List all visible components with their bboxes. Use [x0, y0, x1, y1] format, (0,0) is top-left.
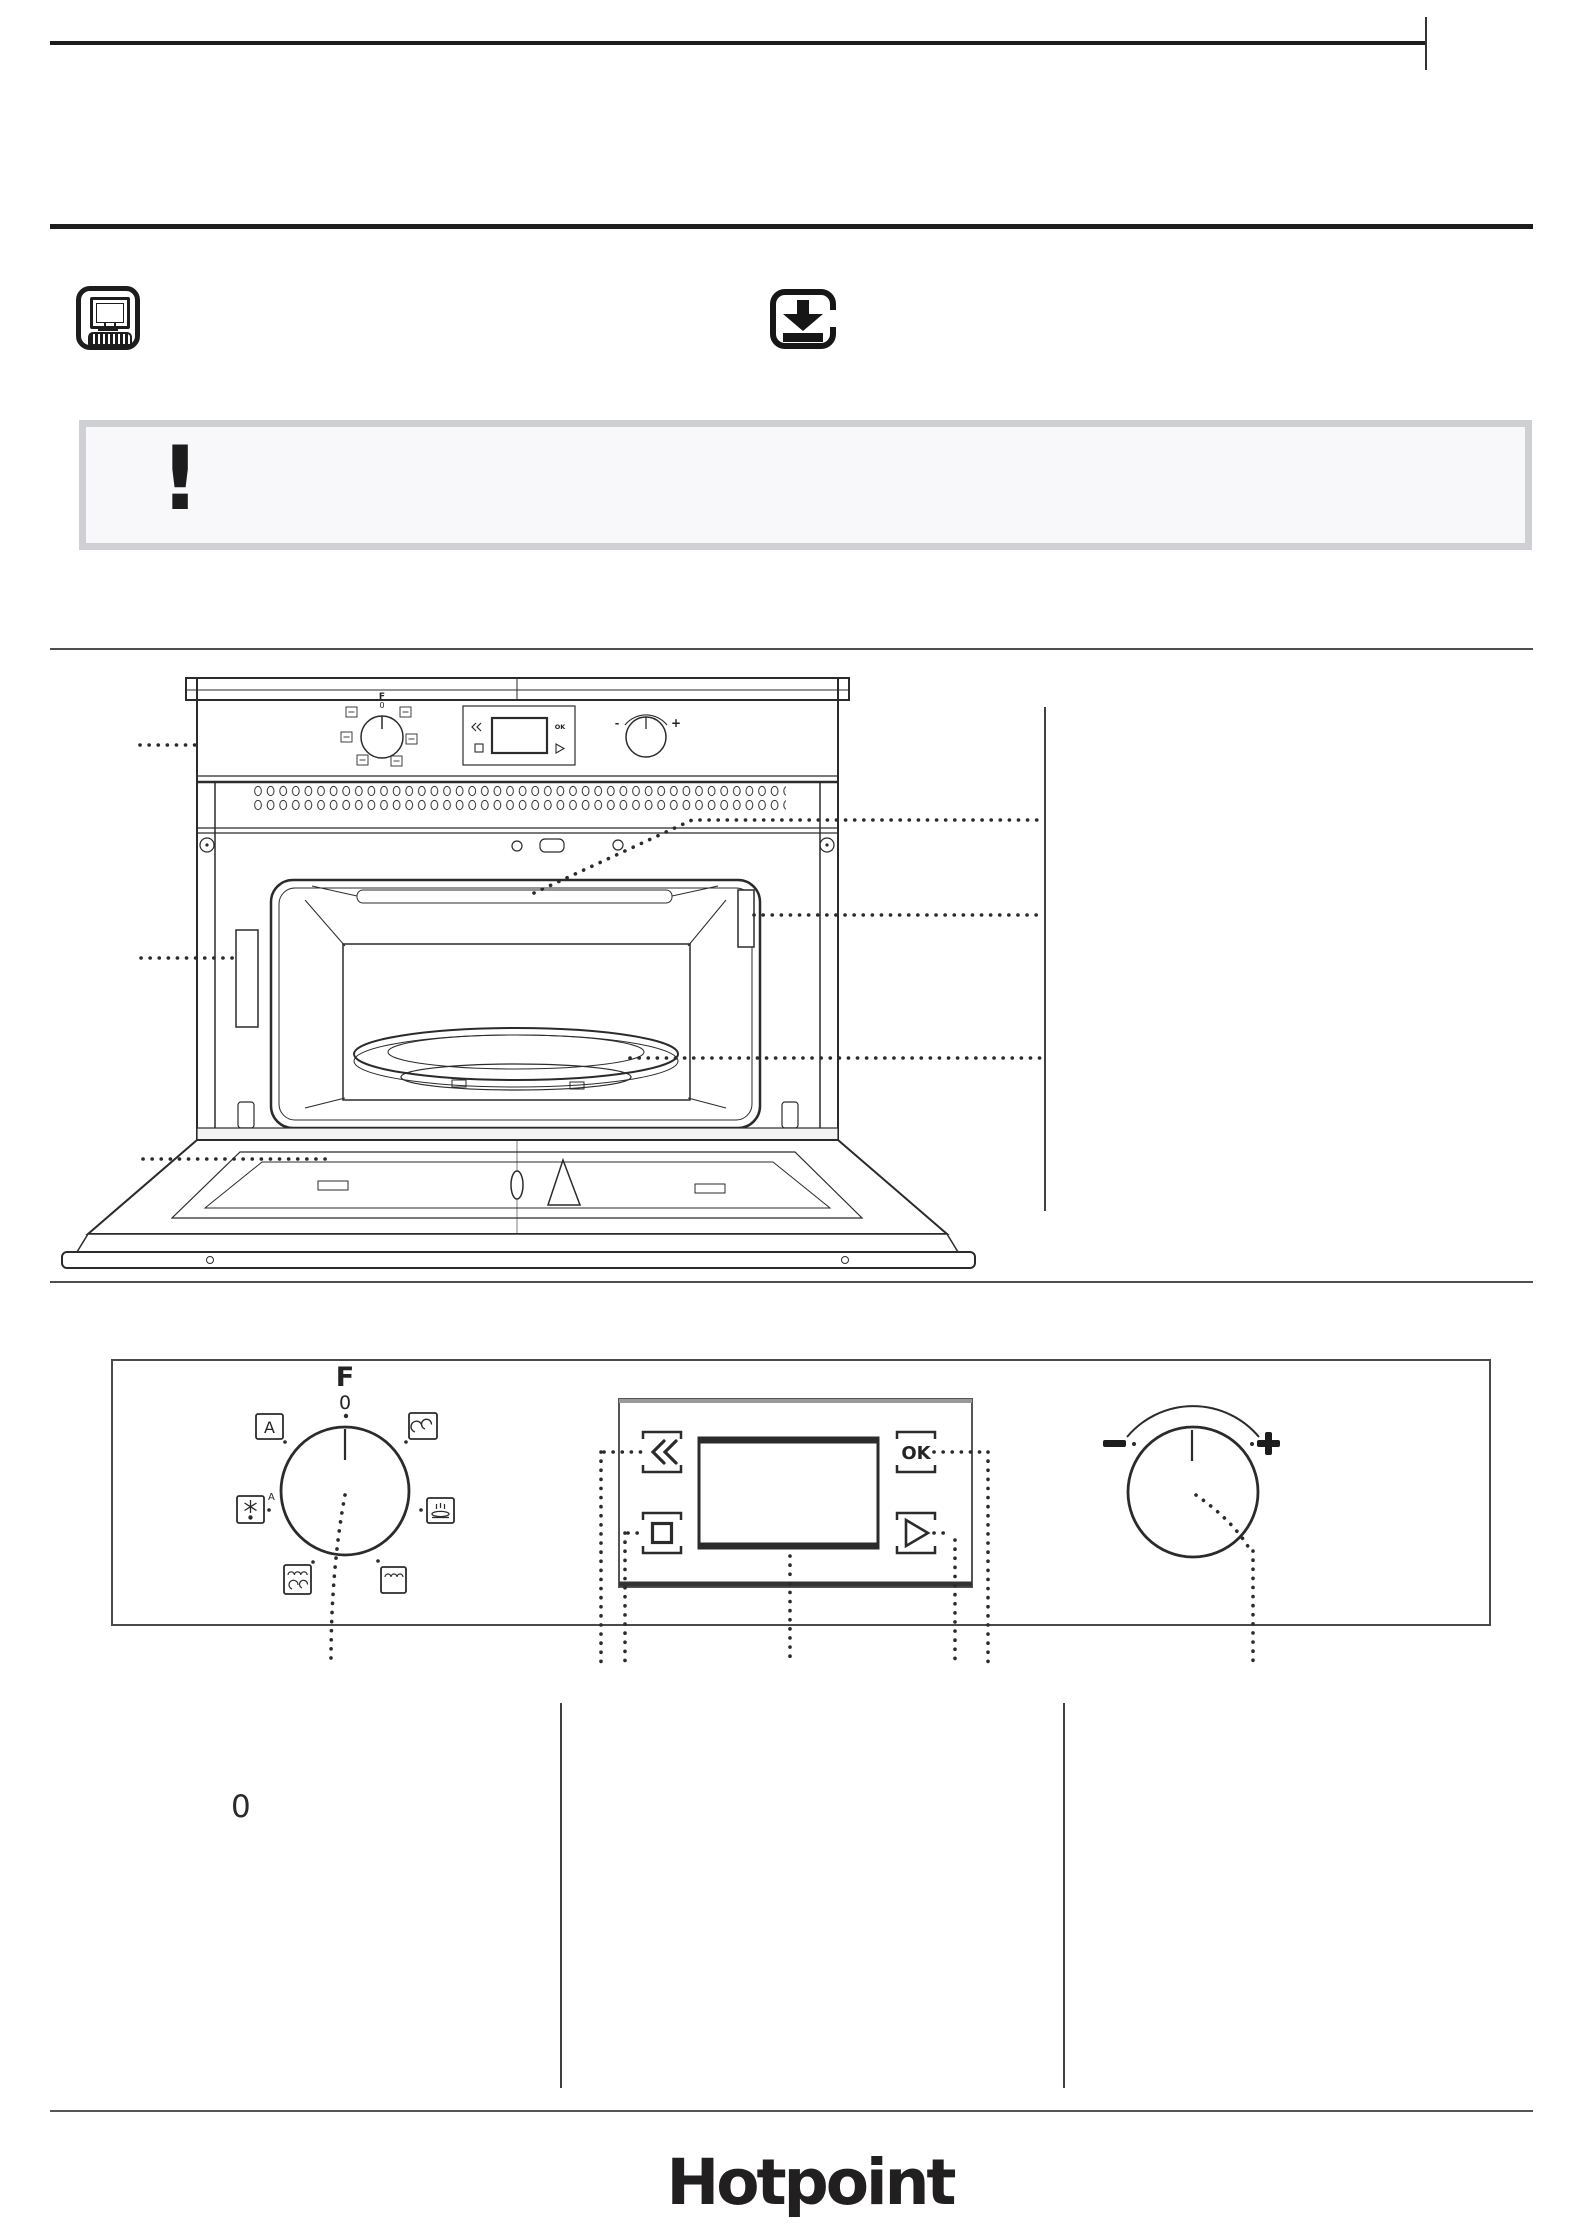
download-icon-gap	[830, 310, 836, 327]
mini-stop-icon	[475, 744, 483, 752]
divider-2	[50, 1281, 1533, 1283]
alert-box: !	[79, 420, 1532, 550]
monitor-stand-base	[98, 328, 118, 331]
latch-ports	[512, 839, 623, 852]
mini-zero-label: 0	[379, 701, 384, 710]
mini-back-icon	[472, 723, 481, 731]
minus-icon	[1103, 1440, 1126, 1447]
manual-page: ! F 0	[0, 0, 1576, 2233]
download-arrow-head	[783, 314, 823, 331]
section-rule	[50, 224, 1533, 229]
download-arrow-stem	[797, 300, 809, 314]
svg-text:A: A	[264, 1418, 275, 1437]
table-divider-right	[1063, 1703, 1065, 2088]
knob-zero-label: 0	[339, 1392, 351, 1414]
knob-f-label: F	[336, 1362, 354, 1393]
defrost-sup-label: A	[268, 1492, 275, 1503]
display-screen	[699, 1438, 878, 1548]
zero-setting-symbol: 0	[231, 1789, 251, 1825]
cavity-ceiling-plate	[357, 890, 672, 903]
oven-diagram: F 0 OK	[40, 665, 1060, 1295]
mini-ok-label: OK	[555, 723, 567, 731]
download-tray-bar	[783, 333, 823, 342]
screw-left	[200, 838, 214, 852]
cavity-lamp	[738, 890, 754, 947]
oven-top-cap	[186, 678, 849, 700]
brand-logo: Hotpoint	[510, 2146, 1110, 2219]
exclamation-mark: !	[160, 435, 200, 523]
mini-start-icon	[556, 744, 564, 753]
download-icon	[770, 289, 836, 349]
divider-1	[50, 648, 1533, 650]
footer-rule	[50, 2110, 1533, 2112]
door-front-edge	[62, 1252, 975, 1268]
table-divider-left	[560, 1703, 562, 2088]
mini-plus-label: +	[671, 716, 681, 730]
mini-minus-label: -	[615, 717, 620, 730]
oven-cavity	[236, 880, 760, 1128]
display-module: OK	[619, 1399, 972, 1587]
screw-right	[820, 838, 834, 852]
oven-control-strip: F 0 OK	[197, 692, 838, 782]
ok-label: OK	[901, 1443, 931, 1464]
fold-tick	[1425, 17, 1427, 70]
control-panel-diagram: F 0 A A	[100, 1352, 1500, 1682]
mini-display-module: OK	[463, 706, 575, 765]
monitor-screen-shape	[96, 303, 124, 323]
leader-cavity-ceiling	[534, 820, 1043, 893]
mini-adjust-knob: - +	[615, 715, 681, 757]
computer-icon	[76, 286, 140, 350]
vent-rows	[250, 784, 786, 812]
frame-columns	[215, 782, 820, 1128]
keyboard-shape	[88, 332, 132, 346]
door-pin	[511, 1171, 523, 1199]
top-rule	[50, 41, 1426, 45]
door-latch	[236, 930, 258, 1027]
